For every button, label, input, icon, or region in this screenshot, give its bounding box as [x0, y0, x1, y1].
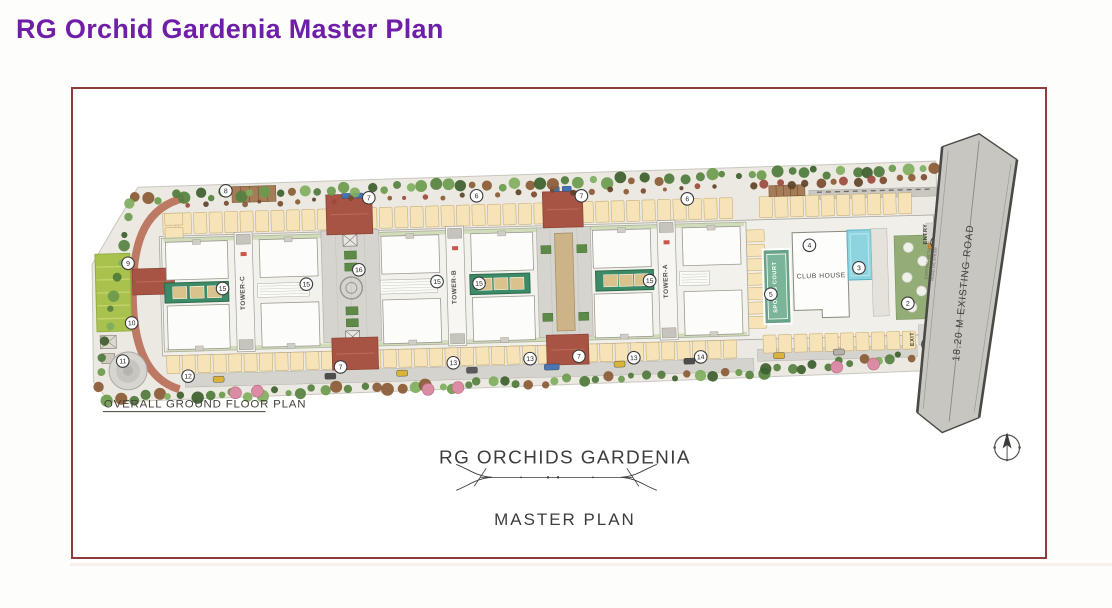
- svg-text:6: 6: [475, 193, 479, 200]
- plan-marker-7: 7: [575, 189, 588, 202]
- svg-text:7: 7: [579, 193, 583, 200]
- plan-marker-6: 6: [470, 189, 483, 202]
- svg-text:15: 15: [302, 281, 310, 288]
- svg-text:7: 7: [577, 354, 581, 361]
- svg-text:15: 15: [475, 281, 483, 288]
- plan-marker-15: 15: [643, 274, 656, 287]
- master-plan-image: SPORTS COURT CLUB HOUSE ENTRY EXIT TOWER…: [73, 89, 1045, 557]
- svg-text:13: 13: [449, 360, 457, 367]
- plan-marker-4: 4: [803, 239, 816, 252]
- site-plan: SPORTS COURT CLUB HOUSE ENTRY EXIT TOWER…: [88, 161, 954, 407]
- tower-label: TOWER-B: [451, 270, 459, 304]
- plan-marker-6: 6: [681, 192, 694, 205]
- plan-marker-3: 3: [852, 261, 865, 274]
- plan-subtitle: MASTER PLAN: [494, 510, 636, 529]
- svg-text:9: 9: [126, 261, 130, 268]
- plan-marker-13: 13: [627, 351, 640, 364]
- plan-marker-13: 13: [447, 356, 460, 369]
- master-plan-frame: SPORTS COURT CLUB HOUSE ENTRY EXIT TOWER…: [71, 87, 1047, 559]
- svg-text:7: 7: [339, 364, 343, 371]
- plan-marker-12: 12: [182, 370, 195, 383]
- tower-label: TOWER-A: [662, 264, 670, 298]
- page-title: RG Orchid Gardenia Master Plan: [16, 14, 444, 45]
- svg-text:6: 6: [685, 196, 689, 203]
- plan-marker-10: 10: [125, 316, 138, 329]
- svg-text:8: 8: [224, 188, 228, 195]
- svg-text:12: 12: [184, 373, 192, 380]
- svg-text:4: 4: [807, 243, 811, 250]
- plan-marker-8: 8: [219, 184, 232, 197]
- plan-marker-7: 7: [572, 350, 585, 363]
- plan-marker-14: 14: [694, 350, 707, 363]
- svg-text:16: 16: [355, 267, 363, 274]
- plan-marker-15: 15: [300, 278, 313, 291]
- plan-marker-7: 7: [334, 360, 347, 373]
- plan-caption: OVERALL GROUND FLOOR PLAN: [104, 399, 306, 411]
- plan-marker-11: 11: [116, 355, 129, 368]
- plan-marker-15: 15: [473, 277, 486, 290]
- plan-marker-2: 2: [901, 297, 914, 310]
- plan-marker-16: 16: [352, 263, 365, 276]
- svg-text:13: 13: [630, 355, 638, 362]
- svg-text:15: 15: [433, 279, 441, 286]
- svg-text:5: 5: [769, 292, 773, 299]
- exit-label: EXIT: [910, 332, 916, 346]
- svg-text:2: 2: [906, 301, 910, 308]
- svg-text:7: 7: [367, 195, 371, 202]
- svg-text:10: 10: [128, 320, 136, 327]
- plan-marker-9: 9: [122, 257, 135, 270]
- compass-icon: [993, 433, 1021, 462]
- svg-text:11: 11: [119, 358, 126, 365]
- plan-title: RG ORCHIDS GARDENIA: [439, 447, 691, 468]
- club-house-label: CLUB HOUSE: [797, 272, 846, 280]
- svg-text:13: 13: [526, 356, 534, 363]
- plan-marker-7: 7: [362, 191, 375, 204]
- svg-text:15: 15: [219, 286, 227, 293]
- plan-marker-15: 15: [431, 275, 444, 288]
- svg-text:14: 14: [697, 354, 705, 361]
- plan-marker-5: 5: [764, 288, 777, 301]
- svg-text:3: 3: [857, 265, 861, 272]
- plan-marker-13: 13: [524, 352, 537, 365]
- tower-label: TOWER-C: [239, 276, 247, 310]
- svg-text:15: 15: [646, 278, 654, 285]
- next-section-hint: [70, 563, 1112, 566]
- plan-marker-15: 15: [216, 282, 229, 295]
